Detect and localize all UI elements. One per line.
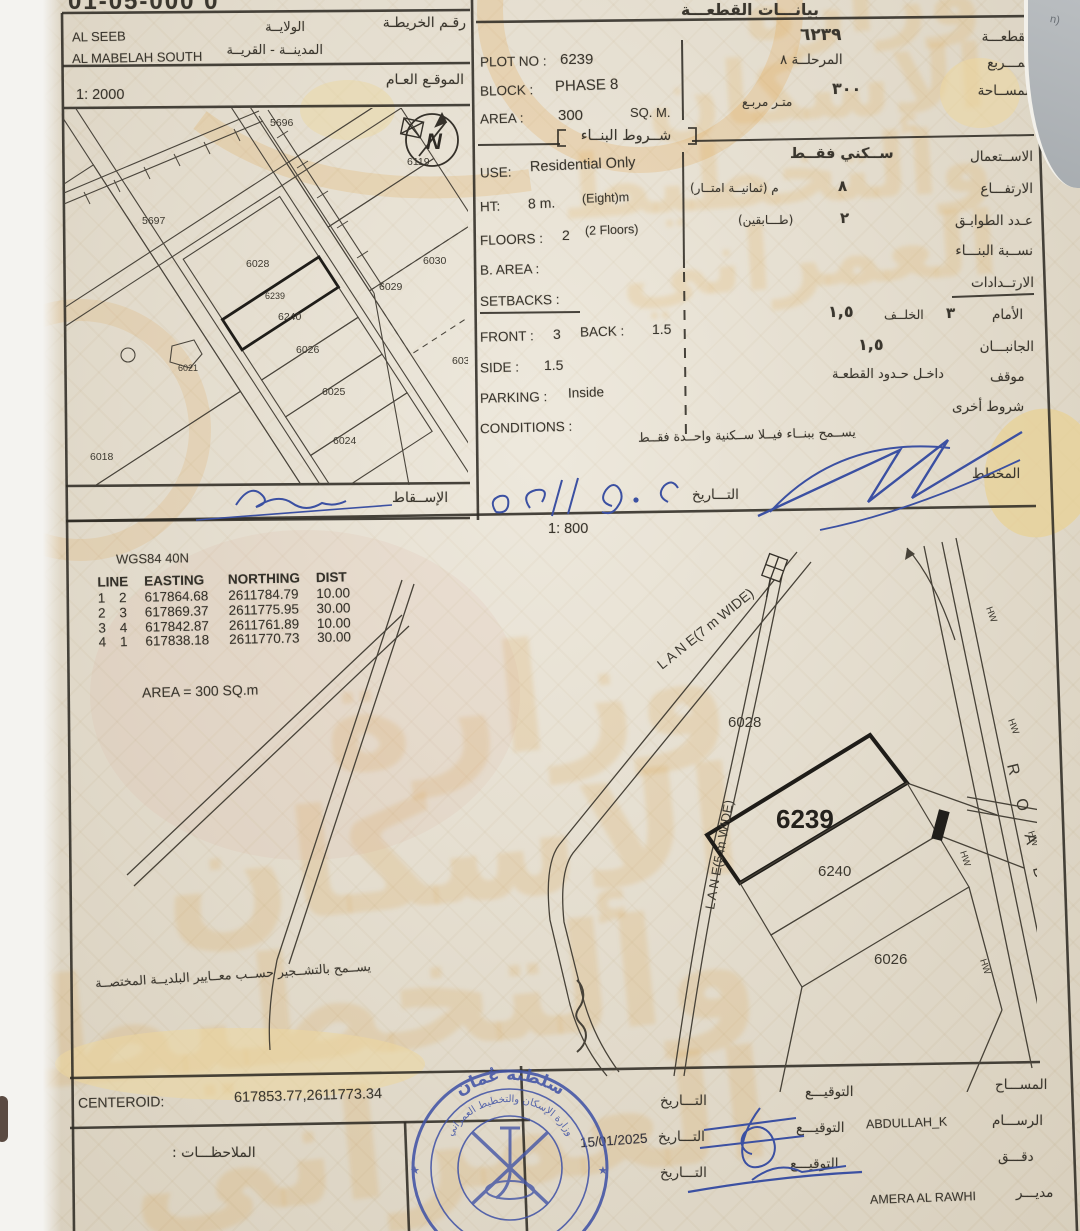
stamp-star-left: ★ — [410, 1164, 420, 1177]
ink-signatures — [0, 0, 1080, 1231]
stamp-star-right: ★ — [598, 1164, 608, 1177]
scanned-document-photo: وزارة الإسكان والتخطيط العمراني وزارة ال… — [0, 0, 1080, 1231]
official-stamp: سلطنة عُمان وزارة الإسكان والتخطيط العمر… — [398, 1056, 622, 1231]
backdrop-text: n) — [1049, 13, 1061, 27]
krooki-paper: وزارة الإسكان والتخطيط العمراني وزارة ال… — [0, 0, 1080, 1231]
